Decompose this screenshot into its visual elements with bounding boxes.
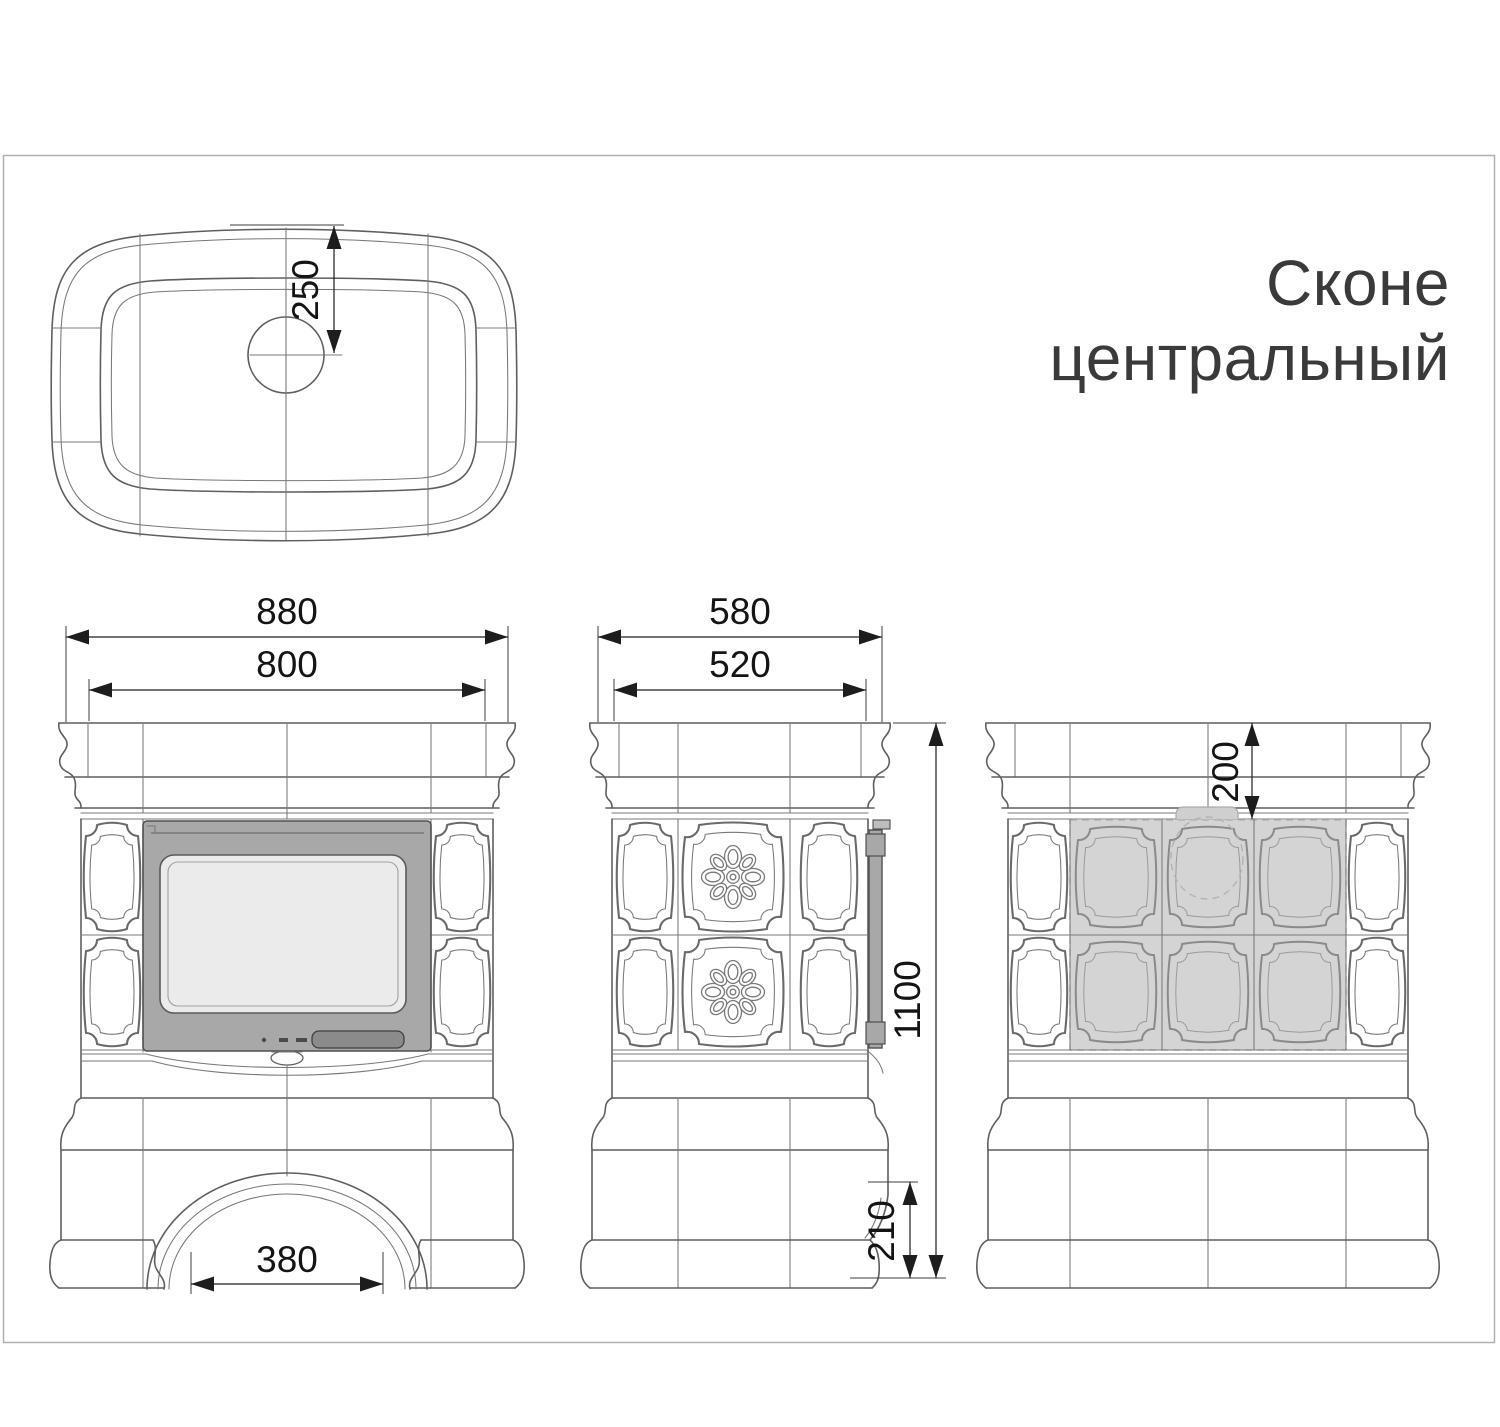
back-tile — [1011, 823, 1068, 932]
dim-label: 800 — [256, 644, 318, 685]
title-line-1: Сконе — [810, 246, 1450, 321]
front-cornice — [59, 723, 515, 819]
front-tile — [84, 823, 141, 932]
back-body — [1008, 817, 1408, 1098]
side-view: 580 520 — [581, 591, 946, 1288]
front-tile — [434, 938, 491, 1047]
flue-stub — [1176, 807, 1238, 820]
title-line-2: центральный — [810, 321, 1450, 396]
side-body — [612, 819, 890, 1098]
dim-label: 210 — [861, 1200, 902, 1262]
drawing-title: Сконе центральный — [810, 246, 1450, 396]
dim-front-inner-width: 800 — [89, 644, 485, 721]
side-rosette-tile — [683, 823, 784, 932]
dim-label: 520 — [709, 644, 771, 685]
dim-flue-offset-back: 200 — [1205, 723, 1252, 819]
door-knob — [271, 1051, 303, 1065]
stove-drawing: 250 880 800 — [0, 0, 1500, 1427]
top-view-outer-outline — [51, 229, 517, 541]
dim-label: 880 — [256, 591, 318, 632]
door-vent-slot — [296, 1038, 307, 1042]
dim-label: 580 — [709, 591, 771, 632]
door-glass — [160, 855, 406, 1013]
door-vent-slot — [279, 1038, 288, 1042]
side-tile — [801, 823, 858, 932]
front-tile — [84, 938, 141, 1047]
side-tile — [617, 938, 674, 1047]
dim-label: 380 — [256, 1239, 318, 1280]
back-tile — [1349, 823, 1406, 932]
front-tile — [434, 823, 491, 932]
dim-side-inner-depth: 520 — [614, 644, 866, 721]
side-cornice — [590, 723, 890, 819]
side-tile — [617, 823, 674, 932]
side-base — [581, 1098, 888, 1288]
dim-label: 200 — [1205, 741, 1246, 803]
dim-label: 250 — [285, 259, 326, 321]
back-tile — [1349, 938, 1406, 1047]
dim-label: 1100 — [887, 960, 928, 1040]
dim-total-height: 1100 — [850, 723, 946, 1278]
door-vent-dot — [262, 1038, 266, 1042]
front-view: 880 800 — [50, 591, 524, 1294]
side-tile — [801, 938, 858, 1047]
side-rosette-tile — [683, 938, 784, 1047]
drawing-sheet: 250 880 800 — [0, 0, 1500, 1427]
back-tile — [1011, 938, 1068, 1047]
top-view: 250 — [51, 225, 517, 541]
door-handle — [312, 1031, 404, 1048]
back-view: 200 — [977, 723, 1439, 1288]
dim-base-notch-height: 210 — [861, 1182, 918, 1278]
firebox-door — [143, 821, 431, 1051]
back-base — [977, 1098, 1439, 1288]
dim-arch-width: 380 — [191, 1239, 383, 1294]
